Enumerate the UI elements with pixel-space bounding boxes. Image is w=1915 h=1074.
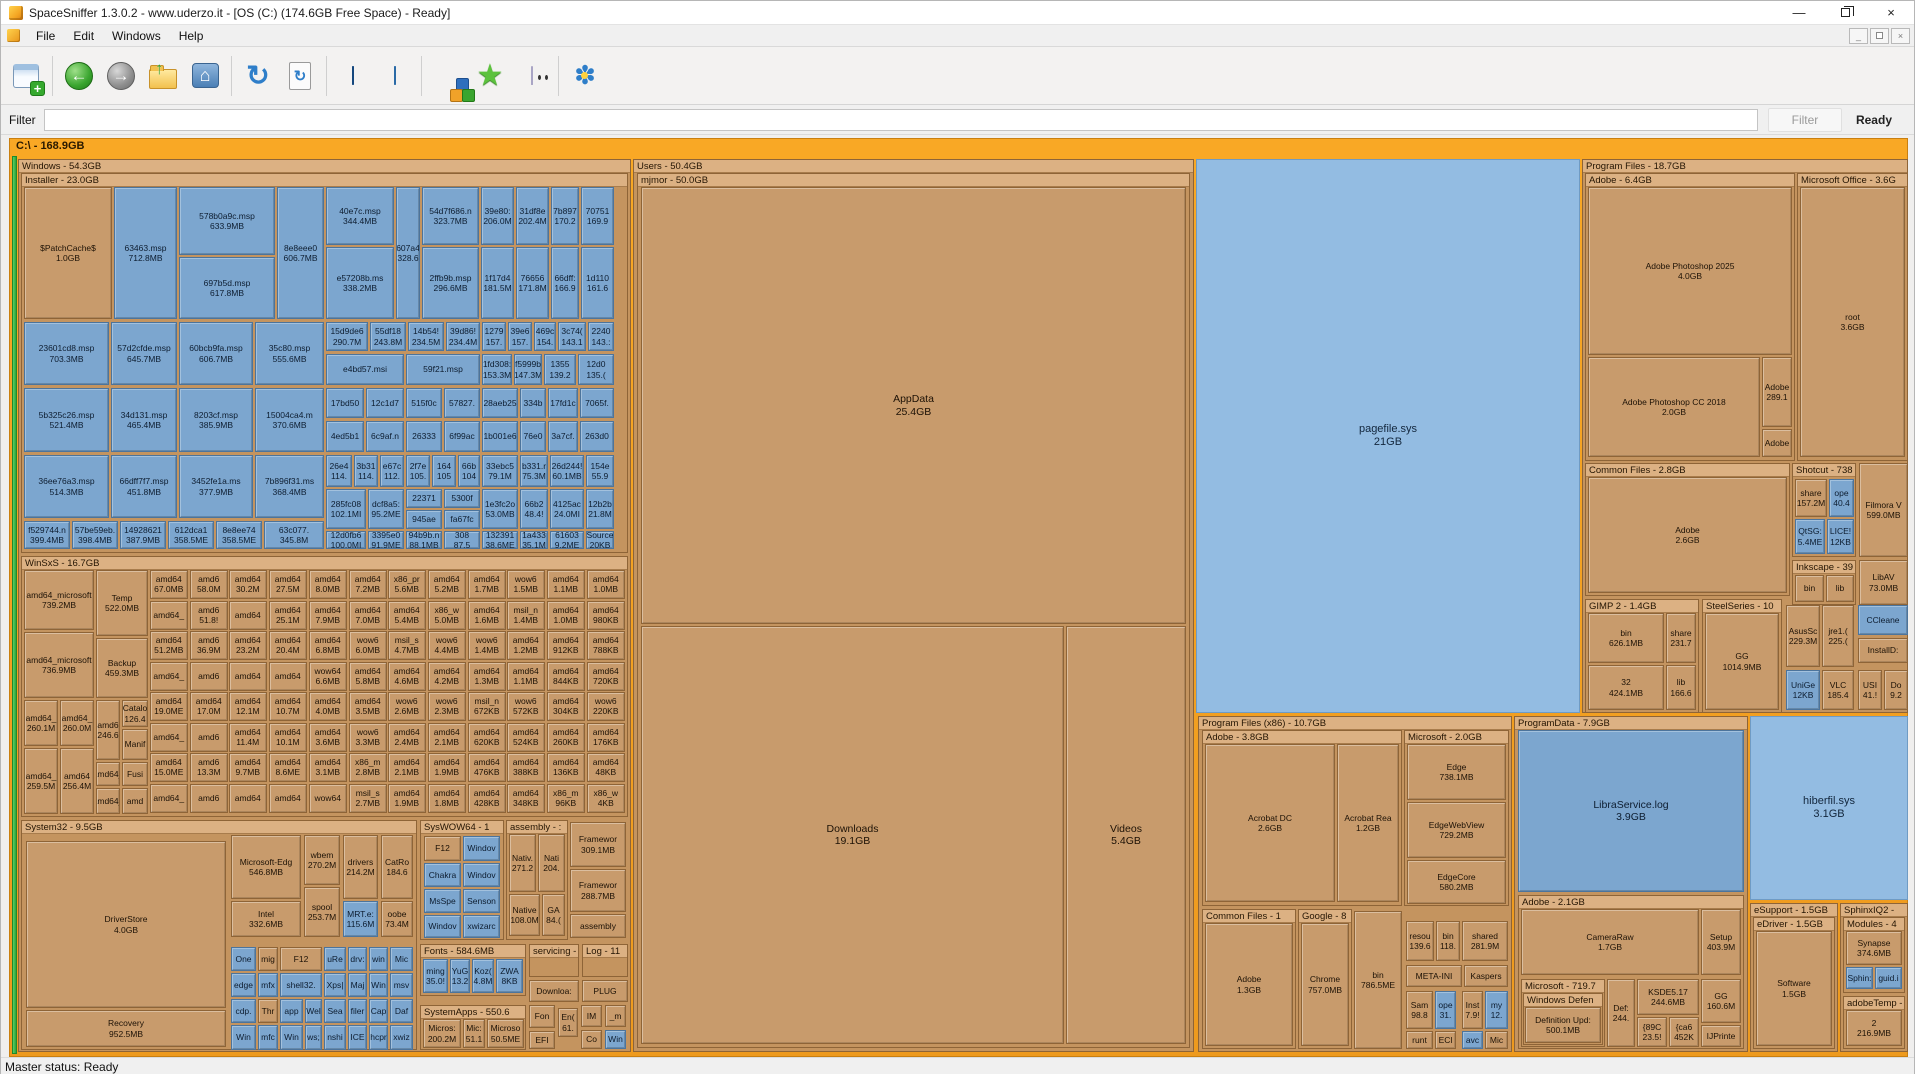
treemap-folder-block[interactable]: amd64844KB (547, 662, 585, 691)
treemap-file-block[interactable]: 59f21.msp (406, 354, 480, 385)
treemap-folder-block[interactable]: amd64720KB (587, 662, 625, 691)
treemap-folder-block[interactable]: lib (1826, 575, 1854, 602)
treemap-file-block[interactable]: 63c077.345.8M (264, 521, 324, 549)
treemap-folder-block[interactable]: PLUG (582, 980, 628, 1002)
treemap-file-block[interactable]: 1279157. (482, 322, 506, 351)
treemap-folder-block[interactable]: amd6 (190, 662, 228, 691)
treemap-folder-block[interactable]: wow62.6MB (388, 692, 426, 721)
treemap-file-block[interactable]: 154e55.9 (586, 455, 614, 487)
treemap-root-header[interactable]: C:\ - 168.9GB (16, 140, 84, 152)
minimize-button[interactable]: — (1776, 1, 1822, 24)
treemap-folder-block[interactable]: amd6410.7M (269, 692, 307, 721)
treemap-file-block[interactable]: LICE!12KB (1827, 519, 1854, 554)
treemap-folder-block[interactable]: 32424.1MB (1588, 665, 1664, 710)
treemap-folder-block[interactable]: amd644.6MB (388, 662, 426, 691)
treemap-file-block[interactable]: win (369, 947, 388, 971)
treemap-file-block[interactable]: Win (280, 1025, 303, 1050)
treemap-folder-block[interactable]: amd641.3MB (468, 662, 506, 691)
treemap-file-block[interactable]: 8e8eee0606.7MB (277, 187, 324, 319)
treemap-folder-block[interactable]: Adobe1.3GB (1205, 923, 1293, 1046)
treemap-folder-block[interactable]: Recovery952.5MB (26, 1010, 226, 1047)
treemap-file-block[interactable]: 164105 (432, 455, 456, 487)
treemap-folder-block[interactable]: amd64_260.0M (60, 700, 94, 746)
treemap-file-block[interactable]: 57827. (444, 388, 480, 418)
treemap-file-block[interactable]: 612dca1358.5ME (168, 521, 214, 549)
treemap-folder-block[interactable]: Microso50.5ME (487, 1019, 524, 1048)
treemap-folder-block[interactable]: amd641.9MB (428, 753, 466, 782)
treemap-folder-block[interactable]: Temp522.0MB (96, 570, 148, 636)
treemap-file-block[interactable]: drv: (348, 947, 367, 971)
treemap-folder-block[interactable]: Adobe Photoshop 20254.0GB (1588, 187, 1792, 355)
treemap-file-block[interactable]: Daf (390, 999, 413, 1023)
treemap-folder-block[interactable]: En(61. (558, 1008, 578, 1037)
treemap-folder-block[interactable]: wow6220KB (587, 692, 625, 721)
treemap-file-block[interactable]: 14b54!234.5M (408, 322, 444, 351)
treemap-folder-block[interactable]: amd643.1MB (309, 753, 347, 782)
treemap-file-block[interactable]: 39d86!234.4M (446, 322, 480, 351)
treemap-folder-block[interactable]: Filmora V599.0MB (1859, 463, 1908, 557)
treemap-folder-block[interactable]: bin118. (1436, 921, 1460, 961)
treemap-file-block[interactable]: shell32. (280, 973, 322, 997)
treemap-file-block[interactable]: 8e8ee74358.5ME (216, 521, 262, 549)
treemap-file-block[interactable]: cdp. (231, 999, 256, 1023)
treemap-file-block[interactable]: e57208b.ms338.2MB (326, 247, 394, 319)
treemap-file-block[interactable]: LibraService.log3.9GB (1518, 730, 1744, 892)
treemap-folder-block[interactable]: LibAV73.0MB (1859, 560, 1908, 605)
treemap-file-block[interactable]: 7b896f31.ms368.4MB (255, 455, 324, 518)
treemap-folder-block[interactable]: Framewor309.1MB (570, 822, 626, 867)
treemap-folder-block[interactable]: Inst7.9! (1462, 991, 1483, 1029)
treemap-file-block[interactable]: e67c112. (380, 455, 404, 487)
treemap-file-block[interactable]: mfx (258, 973, 278, 997)
treemap-file-block[interactable]: 15d9de6290.7M (326, 322, 368, 351)
treemap-folder-block[interactable]: META-INI (1406, 965, 1462, 987)
treemap-file-block[interactable]: 2240143.: (588, 322, 614, 351)
treemap-file-block[interactable]: UniGe12KB (1786, 670, 1820, 710)
maximize-button[interactable] (1822, 1, 1868, 24)
treemap[interactable]: C:\ - 168.9GB Windows - 54.3GBUsers - 50… (9, 138, 1908, 1057)
treemap-file-block[interactable]: 31df8e202.4M (516, 187, 549, 245)
treemap-file-block[interactable]: 28aeb25 (482, 388, 518, 418)
treemap-file-block[interactable]: 57be59eb.398.4MB (72, 521, 118, 549)
treemap-file-block[interactable]: msv (390, 973, 413, 997)
treemap-folder-block[interactable]: wow646.6MB (309, 662, 347, 691)
treemap-file-block[interactable]: app (280, 999, 303, 1023)
treemap-folder-block[interactable]: amd6427.5M (269, 570, 307, 599)
treemap-folder-block[interactable]: amd64_259.5M (24, 748, 58, 814)
treemap-file-block[interactable]: Maj (348, 973, 367, 997)
treemap-file-block[interactable]: 8203cf.msp385.9MB (179, 388, 253, 452)
treemap-folder-block[interactable]: EdgeWebView729.2MB (1407, 802, 1506, 858)
treemap-folder-block[interactable]: x86_m2.8MB (349, 753, 387, 782)
treemap-file-block[interactable]: 70751169.9 (581, 187, 614, 245)
treemap-folder-block[interactable]: amd64_microsoft736.9MB (24, 632, 94, 698)
treemap-file-block[interactable]: 7065f. (580, 388, 614, 418)
treemap-folder-block[interactable]: amd651.8! (190, 601, 228, 630)
treemap-file-block[interactable]: 3395e091.9ME (368, 531, 404, 549)
treemap-folder-block[interactable]: amd6420.4M (269, 631, 307, 660)
treemap-folder-block[interactable]: Nati204. (538, 834, 565, 892)
treemap-folder-block[interactable]: amd642.1MB (388, 753, 426, 782)
treemap-file-block[interactable]: 39e80:206.0M (481, 187, 514, 245)
treemap-folder-block[interactable]: wow63.3MB (349, 723, 387, 752)
treemap-folder-block[interactable]: {89C23.5! (1637, 1017, 1667, 1047)
treemap-file-block[interactable]: 1e3fc2o53.0MB (482, 489, 518, 529)
treemap-folder-block[interactable]: Adobe Photoshop CC 20182.0GB (1588, 357, 1760, 457)
treemap-folder-block[interactable]: Adobe (1762, 429, 1792, 457)
treemap-folder-block[interactable]: amd64 (269, 784, 307, 813)
treemap-folder-block[interactable]: wow64.4MB (428, 631, 466, 660)
treemap-folder-block[interactable]: amd64912KB (547, 631, 585, 660)
treemap-folder-block[interactable]: Mic (1485, 1031, 1508, 1049)
treemap-folder-block[interactable]: amd64 (229, 601, 267, 630)
show-free-space-button[interactable]: ★ (469, 53, 511, 99)
treemap-file-block[interactable]: dcf8a5:95.2ME (368, 489, 404, 529)
go-forward-button[interactable]: → (100, 53, 142, 99)
treemap-folder-block[interactable]: amd643.6MB (309, 723, 347, 752)
treemap-folder-block[interactable]: wow6572KB (507, 692, 545, 721)
treemap-folder-block[interactable]: AsusSc229.3M (1786, 605, 1820, 667)
treemap-file-block[interactable]: 15004ca4.m370.6MB (255, 388, 324, 452)
treemap-file-block[interactable]: 263d0 (580, 421, 614, 452)
treemap-folder-block[interactable]: amd6425.1M (269, 601, 307, 630)
treemap-folder-block[interactable]: amd641.1MB (507, 662, 545, 691)
treemap-folder-block[interactable]: AppData25.4GB (641, 187, 1186, 624)
treemap-file-block[interactable]: fa67fc (444, 510, 480, 529)
treemap-file-block[interactable]: 6c9af.n (366, 421, 404, 452)
treemap-folder-block[interactable]: bin (1795, 575, 1824, 602)
treemap-file-block[interactable]: Senson (463, 889, 500, 913)
treemap-file-block[interactable]: 66dff:166.9 (551, 247, 579, 319)
go-back-button[interactable]: ← (58, 53, 100, 99)
treemap-folder-block[interactable]: Acrobat DC2.6GB (1205, 744, 1335, 902)
treemap-folder-block[interactable]: Backup459.3MB (96, 638, 148, 698)
treemap-folder-block[interactable]: amd646.8MB (309, 631, 347, 660)
treemap-folder-block[interactable]: assembly (570, 914, 626, 938)
treemap-group[interactable]: servicing - (529, 944, 579, 977)
treemap-file-block[interactable]: 36ee76a3.msp514.3MB (24, 455, 109, 518)
treemap-file-block[interactable]: Chakra (424, 863, 461, 887)
treemap-folder-block[interactable]: amd6467.0MB (150, 570, 188, 599)
treemap-file-block[interactable]: Mic (390, 947, 413, 971)
treemap-folder-block[interactable]: amd6 (190, 723, 228, 752)
treemap-folder-block[interactable]: wow61.5MB (507, 570, 545, 599)
treemap-folder-block[interactable]: amd6410.1M (269, 723, 307, 752)
treemap-folder-block[interactable]: EdgeCore580.2MB (1407, 860, 1506, 904)
treemap-folder-block[interactable]: Downloads19.1GB (641, 626, 1064, 1044)
treemap-file-block[interactable]: 26e4114. (326, 455, 352, 487)
treemap-folder-block[interactable]: amd6412.1M (229, 692, 267, 721)
treemap-file-block[interactable]: 5b325c26.msp521.4MB (24, 388, 109, 452)
treemap-file-block[interactable]: b331.r75.3M (520, 455, 548, 487)
treemap-file-block[interactable]: Win (369, 973, 388, 997)
treemap-folder-block[interactable]: amd643.5MB (349, 692, 387, 721)
treemap-file-block[interactable]: 26d244!60.1MB (550, 455, 584, 487)
treemap-file-block[interactable]: 3b31114. (354, 455, 378, 487)
treemap-file-block[interactable]: 3a7cf. (548, 421, 578, 452)
show-files-button[interactable] (427, 53, 469, 99)
treemap-folder-block[interactable]: amd64476KB (468, 753, 506, 782)
treemap-folder-block[interactable]: amd6423.2M (229, 631, 267, 660)
treemap-file-block[interactable]: 30887.5 (444, 531, 480, 549)
treemap-folder-block[interactable]: Synapse374.6MB (1846, 931, 1902, 965)
treemap-file-block[interactable]: Sea (324, 999, 346, 1023)
treemap-folder-block[interactable]: amd6415.0ME (150, 753, 188, 782)
treemap-folder-block[interactable]: Do9.2 (1884, 670, 1908, 710)
treemap-file-block[interactable]: 578b0a9c.msp633.9MB (179, 187, 275, 255)
treemap-file-block[interactable]: 2f7e105. (406, 455, 430, 487)
treemap-folder-block[interactable]: Microsoft-Edg546.8MB (231, 835, 301, 899)
close-button[interactable]: × (1868, 1, 1914, 24)
treemap-file-block[interactable]: 17fd1c (548, 388, 578, 418)
treemap-folder-block[interactable]: GG1014.9MB (1705, 613, 1779, 710)
treemap-folder-block[interactable]: amd64 (269, 662, 307, 691)
treemap-folder-block[interactable]: Nativ.271.2 (509, 834, 536, 892)
treemap-file-block[interactable]: Xps| (324, 973, 346, 997)
treemap-file-block[interactable]: ope40.4 (1829, 479, 1854, 517)
treemap-folder-block[interactable]: Acrobat Rea1.2GB (1337, 744, 1399, 902)
treemap-folder-block[interactable]: Mic:51.1 (463, 1019, 485, 1048)
new-scan-button[interactable]: + (5, 53, 47, 99)
treemap-folder-block[interactable]: amd64524KB (507, 723, 545, 752)
treemap-file-block[interactable]: Source20KB (586, 531, 614, 549)
treemap-file-block[interactable]: Wel (305, 999, 322, 1023)
treemap-file-block[interactable]: xwiz (390, 1025, 413, 1050)
treemap-file-block[interactable]: 26333 (406, 421, 442, 452)
treemap-file-block[interactable]: 334b (520, 388, 546, 418)
treemap-file-block[interactable]: ming35.0! (423, 959, 448, 993)
treemap-folder-block[interactable]: bin626.1MB (1588, 613, 1664, 663)
treemap-file-block[interactable]: filer (348, 999, 367, 1023)
treemap-file-block[interactable]: 66b248.4! (520, 489, 548, 529)
treemap-folder-block[interactable]: amd641.7MB (468, 570, 506, 599)
treemap-folder-block[interactable]: resou139.6 (1406, 921, 1434, 961)
treemap-file-block[interactable]: pagefile.sys21GB (1196, 159, 1580, 713)
treemap-folder-block[interactable]: ECl (1435, 1031, 1456, 1049)
treemap-folder-block[interactable]: amd647.9MB (309, 601, 347, 630)
treemap-file-block[interactable]: 3452fe1a.ms377.9MB (179, 455, 253, 518)
treemap-file-block[interactable]: One (231, 947, 256, 971)
treemap-folder-block[interactable]: IJPrinte (1701, 1025, 1741, 1047)
treemap-file-block[interactable]: 13239138.6ME (482, 531, 518, 549)
treemap-folder-block[interactable]: Videos5.4GB (1066, 626, 1186, 1044)
treemap-file-block[interactable]: MRT.e:115.6M (343, 901, 378, 937)
treemap-folder-block[interactable]: Downloa: (529, 980, 579, 1002)
treemap-file-block[interactable]: 76656171.8M (516, 247, 549, 319)
treemap-file-block[interactable]: Win (231, 1025, 256, 1050)
treemap-folder-block[interactable]: amd64176KB (587, 723, 625, 752)
treemap-folder-block[interactable]: Adobe2.6GB (1588, 477, 1787, 593)
treemap-folder-block[interactable]: amd64136KB (547, 753, 585, 782)
treemap-folder-block[interactable]: Fusi (122, 762, 148, 786)
treemap-folder-block[interactable]: msil_n672KB (468, 692, 506, 721)
home-button[interactable]: ⌂ (184, 53, 226, 99)
treemap-folder-block[interactable]: Setup403.9M (1701, 909, 1741, 975)
treemap-folder-block[interactable]: amd64_ (150, 784, 188, 813)
treemap-folder-block[interactable]: GG160.6M (1701, 979, 1741, 1023)
treemap-file-block[interactable]: mfc (258, 1025, 278, 1050)
treemap-folder-block[interactable]: amd641.0MB (587, 570, 625, 599)
filter-input[interactable] (44, 109, 1758, 131)
menu-item-file[interactable]: File (27, 27, 64, 45)
treemap-folder-block[interactable]: wow61.4MB (468, 631, 506, 660)
treemap-folder-block[interactable]: Fon (529, 1005, 555, 1028)
treemap-file-block[interactable]: avc (1462, 1031, 1483, 1049)
treemap-folder-block[interactable]: Adobe289.1 (1762, 357, 1792, 427)
treemap-folder-block[interactable]: DriverStore4.0GB (26, 841, 226, 1008)
treemap-file-block[interactable]: Sphin: (1846, 967, 1873, 989)
treemap-folder-block[interactable]: KSDE5.17244.6MB (1637, 979, 1699, 1015)
more-detail-button[interactable] (374, 53, 416, 99)
treemap-folder-block[interactable]: InstallD: (1858, 638, 1908, 663)
treemap-folder-block[interactable]: Kaspers (1464, 965, 1508, 987)
treemap-file-block[interactable]: 607a4328.6 (396, 187, 420, 319)
treemap-folder-block[interactable]: mig (258, 947, 278, 971)
treemap-folder-block[interactable]: Edge738.1MB (1407, 744, 1506, 800)
treemap-file-block[interactable]: 1fd308:153.3M (482, 354, 512, 385)
treemap-file-block[interactable]: Windov (463, 836, 500, 861)
treemap-folder-block[interactable]: amd641.8MB (428, 784, 466, 813)
treemap-file-block[interactable]: uRe (324, 947, 346, 971)
treemap-file-block[interactable]: 1f17d4181.5M (481, 247, 514, 319)
treemap-file-block[interactable]: 14928621387.9MB (120, 521, 166, 549)
treemap-folder-block[interactable]: x86_m96KB (547, 784, 585, 813)
treemap-folder-block[interactable]: VLC185.4 (1822, 670, 1854, 710)
treemap-folder-block[interactable]: amd641.6MB (468, 601, 506, 630)
treemap-folder-block[interactable]: Micros:200.2M (423, 1019, 461, 1048)
treemap-folder-block[interactable]: amd644.0MB (309, 692, 347, 721)
go-up-folder-button[interactable]: ↑ (142, 53, 184, 99)
treemap-file-block[interactable]: 1355139.2 (544, 354, 576, 385)
treemap-folder-block[interactable]: amd645.8MB (349, 662, 387, 691)
treemap-file-block[interactable]: Windov (424, 915, 461, 938)
treemap-folder-block[interactable]: root3.6GB (1800, 187, 1905, 457)
treemap-folder-block[interactable]: amd64_ (150, 723, 188, 752)
treemap-folder-block[interactable]: amd6 (190, 784, 228, 813)
treemap-file-block[interactable]: 33ebc579.1M (482, 455, 518, 487)
treemap-file-block[interactable]: 5300f (444, 489, 480, 508)
treemap-folder-block[interactable]: amd642.1MB (428, 723, 466, 752)
treemap-file-block[interactable]: 469c154. (534, 322, 556, 351)
show-unknown-space-button[interactable] (511, 53, 553, 99)
treemap-file-block[interactable]: ICE (348, 1025, 367, 1050)
treemap-folder-block[interactable]: EFI (529, 1031, 555, 1049)
treemap-folder-block[interactable]: amd64428KB (468, 784, 506, 813)
treemap-folder-block[interactable]: _m (605, 1005, 626, 1027)
treemap-file-block[interactable]: xwizarc (463, 915, 500, 938)
treemap-file-block[interactable]: 40e7c.msp344.4MB (326, 187, 394, 245)
treemap-folder-block[interactable]: shared281.9M (1462, 921, 1508, 961)
treemap-folder-block[interactable]: amd649.7MB (229, 753, 267, 782)
treemap-file-block[interactable]: 12d0fb6100.0MI (326, 531, 366, 549)
treemap-file-block[interactable]: 54d7f686.n323.7MB (422, 187, 479, 245)
treemap-folder-block[interactable]: amd6246.6 (96, 700, 120, 760)
treemap-folder-block[interactable]: amd64388KB (507, 753, 545, 782)
treemap-file-block[interactable]: 22371 (406, 489, 442, 508)
treemap-file-block[interactable]: MsSpe (424, 889, 461, 913)
treemap-file-block[interactable]: 616039.2ME (550, 531, 584, 549)
treemap-folder-block[interactable]: amd644.2MB (428, 662, 466, 691)
treemap-file-block[interactable]: 39e6157. (508, 322, 532, 351)
treemap-folder-block[interactable]: F12 (280, 947, 322, 971)
treemap-file-block[interactable]: 3c74(143.1 (558, 322, 586, 351)
treemap-folder-block[interactable]: Definition Upd:500.1MB (1525, 1007, 1601, 1043)
treemap-folder-block[interactable]: {ca6452K (1669, 1017, 1699, 1047)
treemap-folder-block[interactable]: amd64348KB (507, 784, 545, 813)
treemap-folder-block[interactable]: msil_s2.7MB (349, 784, 387, 813)
treemap-folder-block[interactable]: wbem270.2M (304, 835, 340, 885)
treemap-file-block[interactable]: guid.i (1875, 967, 1902, 989)
treemap-folder-block[interactable]: Native108.0M (509, 894, 540, 936)
treemap-file-block[interactable]: Windov (463, 863, 500, 887)
treemap-folder-block[interactable]: Catalo126.4 (122, 700, 148, 727)
treemap-file-block[interactable]: 4125ac24.0MI (550, 489, 584, 529)
treemap-folder-block[interactable]: amd641.9MB (388, 784, 426, 813)
treemap-folder-block[interactable]: amd641.2MB (507, 631, 545, 660)
treemap-file-block[interactable]: QtSG:5.4ME (1795, 519, 1825, 554)
treemap-folder-block[interactable]: amd6448KB (587, 753, 625, 782)
treemap-folder-block[interactable]: Co (581, 1030, 602, 1049)
treemap-file-block[interactable]: ope31. (1435, 991, 1456, 1029)
treemap-file-block[interactable]: hcpr (369, 1025, 388, 1050)
treemap-folder-block[interactable]: amd64788KB (587, 631, 625, 660)
treemap-folder-block[interactable]: amd64980KB (587, 601, 625, 630)
treemap-folder-block[interactable]: Chrome757.0MB (1301, 923, 1349, 1046)
treemap-folder-block[interactable]: amd64_microsoft739.2MB (24, 570, 94, 630)
treemap-folder-block[interactable]: amd64 (229, 784, 267, 813)
mdi-close-button[interactable]: × (1891, 28, 1910, 44)
treemap-file-block[interactable]: f529744.n399.4MB (24, 521, 70, 549)
treemap-folder-block[interactable]: x86_w5.0MB (428, 601, 466, 630)
treemap-folder-block[interactable]: amd641.1MB (547, 570, 585, 599)
treemap-folder-block[interactable]: wow66.0MB (349, 631, 387, 660)
treemap-folder-block[interactable]: amd64_260.1M (24, 700, 58, 746)
treemap-folder-block[interactable]: amd647.2MB (349, 570, 387, 599)
treemap-file-block[interactable]: my12. (1485, 991, 1508, 1029)
treemap-file-block[interactable]: 17bd50 (326, 388, 364, 418)
treemap-folder-block[interactable]: GA84.( (542, 894, 565, 936)
treemap-file-block[interactable]: 6f99ac (444, 421, 480, 452)
treemap-file-block[interactable]: Win (605, 1030, 626, 1049)
treemap-file-block[interactable]: 35c80.msp555.6MB (255, 322, 324, 385)
treemap-folder-block[interactable]: amd648.0MB (309, 570, 347, 599)
treemap-folder-block[interactable]: share157.2M (1795, 479, 1827, 517)
treemap-folder-block[interactable]: wow64 (309, 784, 347, 813)
menu-item-windows[interactable]: Windows (103, 27, 170, 45)
treemap-folder-block[interactable]: x86_pr5.6MB (388, 570, 426, 599)
treemap-folder-block[interactable]: amd642.4MB (388, 723, 426, 752)
treemap-folder-block[interactable]: share231.7 (1666, 613, 1696, 663)
treemap-file-block[interactable]: 34d131.msp465.4MB (111, 388, 177, 452)
treemap-folder-block[interactable]: amd64 (229, 662, 267, 691)
treemap-folder-block[interactable]: Framewor288.7MB (570, 869, 626, 912)
treemap-folder-block[interactable]: amd636.9M (190, 631, 228, 660)
treemap-file-block[interactable]: e4bd57.msi (326, 354, 404, 385)
treemap-folder-block[interactable]: Manif (122, 729, 148, 760)
treemap-file-block[interactable]: 55df18243.8M (370, 322, 406, 351)
treemap-file-block[interactable]: 63463.msp712.8MB (114, 187, 177, 319)
treemap-file-block[interactable]: f5999b147.3M (514, 354, 542, 385)
mdi-restore-button[interactable] (1870, 28, 1889, 44)
treemap-folder-block[interactable]: CameraRaw1.7GB (1521, 909, 1699, 975)
treemap-file-block[interactable]: 515f0c (406, 388, 442, 418)
treemap-folder-block[interactable]: $PatchCache$1.0GB (24, 187, 112, 319)
treemap-file-block[interactable]: ZWA8KB (496, 959, 523, 993)
treemap-folder-block[interactable]: USI41.! (1858, 670, 1882, 710)
treemap-folder-block[interactable]: Intel332.6MB (231, 901, 301, 937)
treemap-folder-block[interactable]: amd64_ (150, 662, 188, 691)
treemap-folder-block[interactable]: msil_s4.7MB (388, 631, 426, 660)
